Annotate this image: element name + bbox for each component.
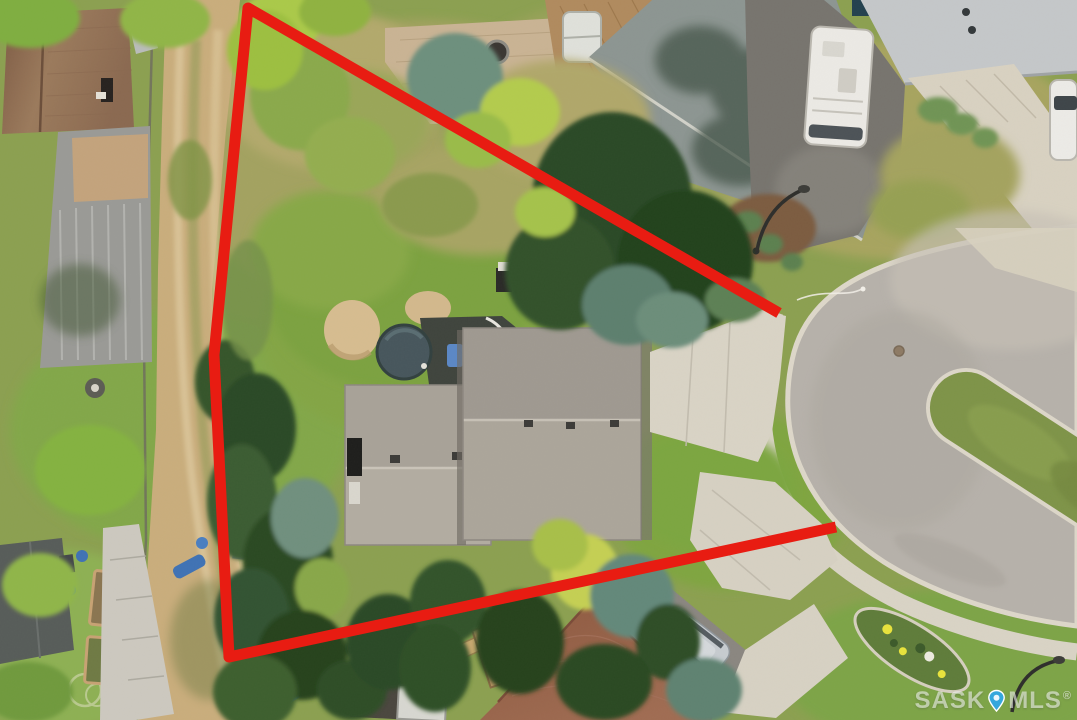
watermark-registered: ® — [1063, 687, 1072, 702]
aerial-scene — [0, 0, 1077, 720]
location-pin-icon — [986, 689, 1007, 713]
photo-grain — [0, 0, 1077, 720]
watermark-suffix: MLS — [1008, 687, 1062, 715]
saskmls-watermark: SASK MLS ® — [915, 687, 1072, 715]
watermark-prefix: SASK — [915, 687, 986, 715]
aerial-property-photo: SASK MLS ® — [0, 0, 1077, 720]
